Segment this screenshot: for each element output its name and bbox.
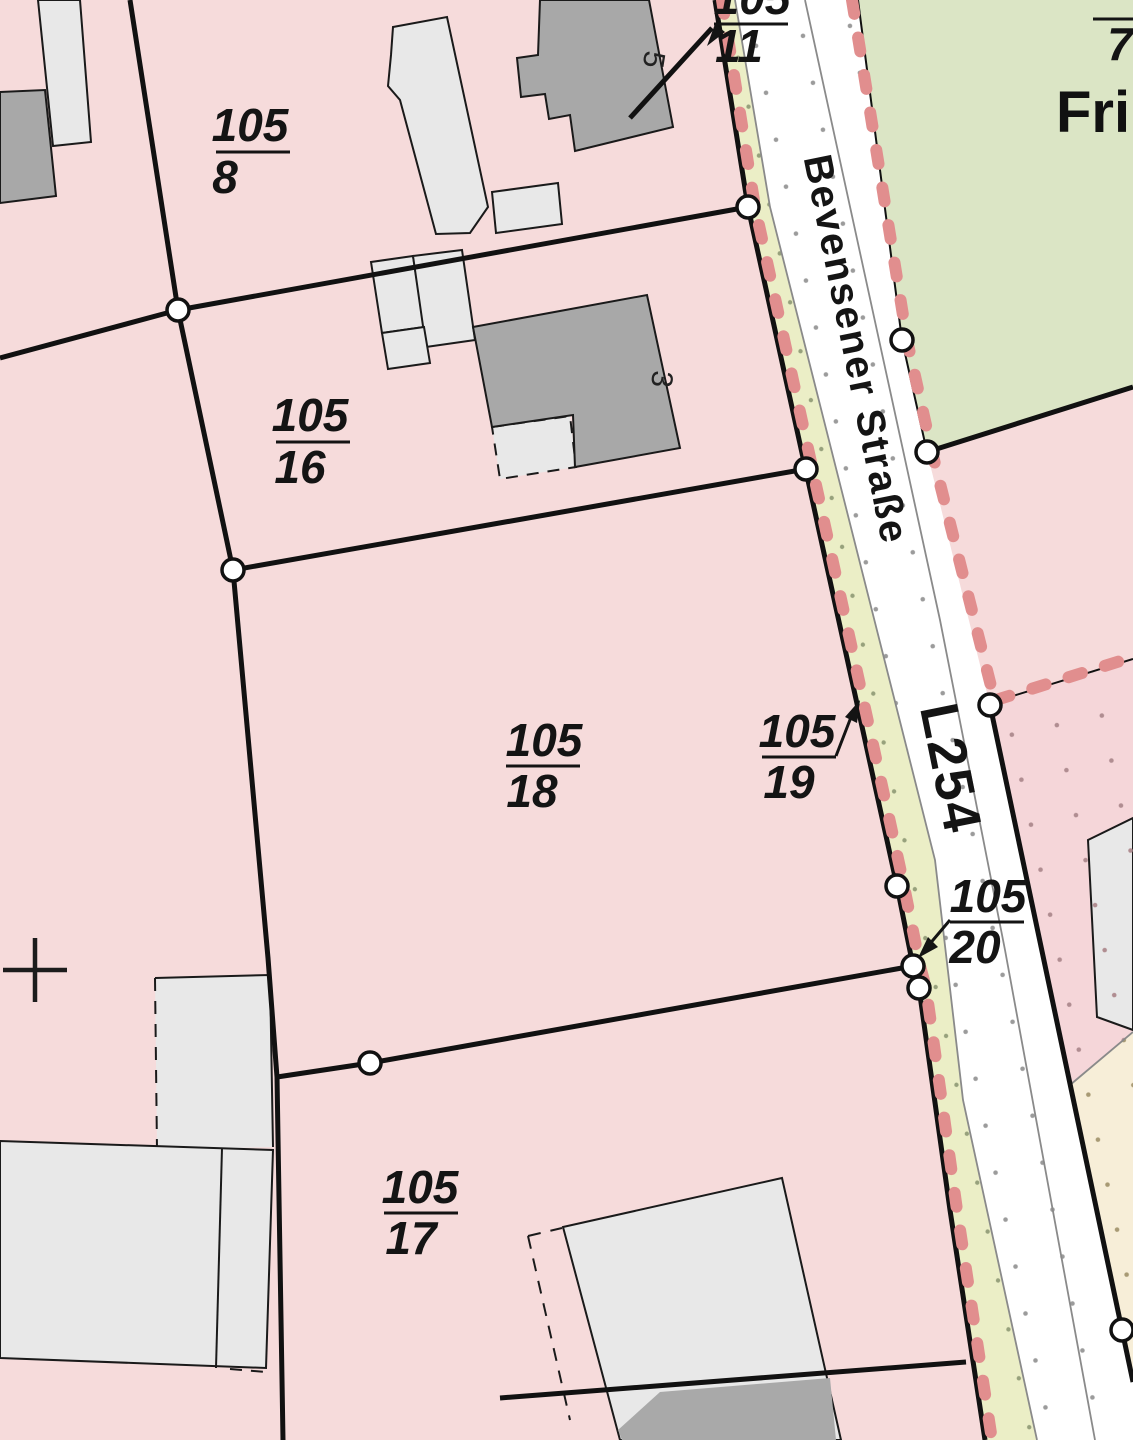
boundary-point [222, 559, 244, 581]
building-105-17-upper [155, 975, 273, 1150]
parcel-105-8-numerator: 105 [212, 99, 290, 151]
cadastral-map-svg: 105 8 105 11 105 16 105 18 105 19 105 20… [0, 0, 1133, 1440]
boundary-point [795, 458, 817, 480]
building-105-8-small [492, 183, 562, 233]
parcel-105-19-denominator: 19 [763, 756, 815, 808]
parcel-105-20-denominator: 20 [948, 921, 1001, 973]
boundary-point [908, 977, 930, 999]
parcel-105-11-denominator: 11 [715, 20, 763, 72]
boundary-point [979, 694, 1001, 716]
parcel-105-17-numerator: 105 [382, 1161, 460, 1213]
boundary-point [886, 875, 908, 897]
parcel-105-8-denominator: 8 [212, 151, 238, 203]
parcel-105-17-denominator: 17 [385, 1212, 439, 1264]
cadastral-map-canvas[interactable]: 105 8 105 11 105 16 105 18 105 19 105 20… [0, 0, 1133, 1440]
parcel-105-18-denominator: 18 [506, 765, 558, 817]
building-105-16-c [382, 327, 430, 369]
boundary-point [916, 441, 938, 463]
parcel-105-16-denominator: 16 [274, 441, 326, 493]
boundary-point [359, 1052, 381, 1074]
house-number-3: 3 [644, 369, 679, 389]
parcel-105-20-numerator: 105 [950, 870, 1028, 922]
boundary-point [737, 196, 759, 218]
parcel-105-19-numerator: 105 [759, 705, 837, 757]
building-topleft-dark [0, 90, 56, 203]
boundary-point [167, 299, 189, 321]
parcel-105-18-numerator: 105 [506, 714, 584, 766]
boundary-point [1111, 1319, 1133, 1341]
parcel-105-16-numerator: 105 [272, 389, 350, 441]
boundary-point [891, 329, 913, 351]
green-area-label: Fri [1056, 80, 1130, 145]
building-bottomleft-large [0, 1141, 273, 1368]
boundary-point [902, 955, 924, 977]
parcel-partial-denominator: 7 [1107, 18, 1133, 70]
